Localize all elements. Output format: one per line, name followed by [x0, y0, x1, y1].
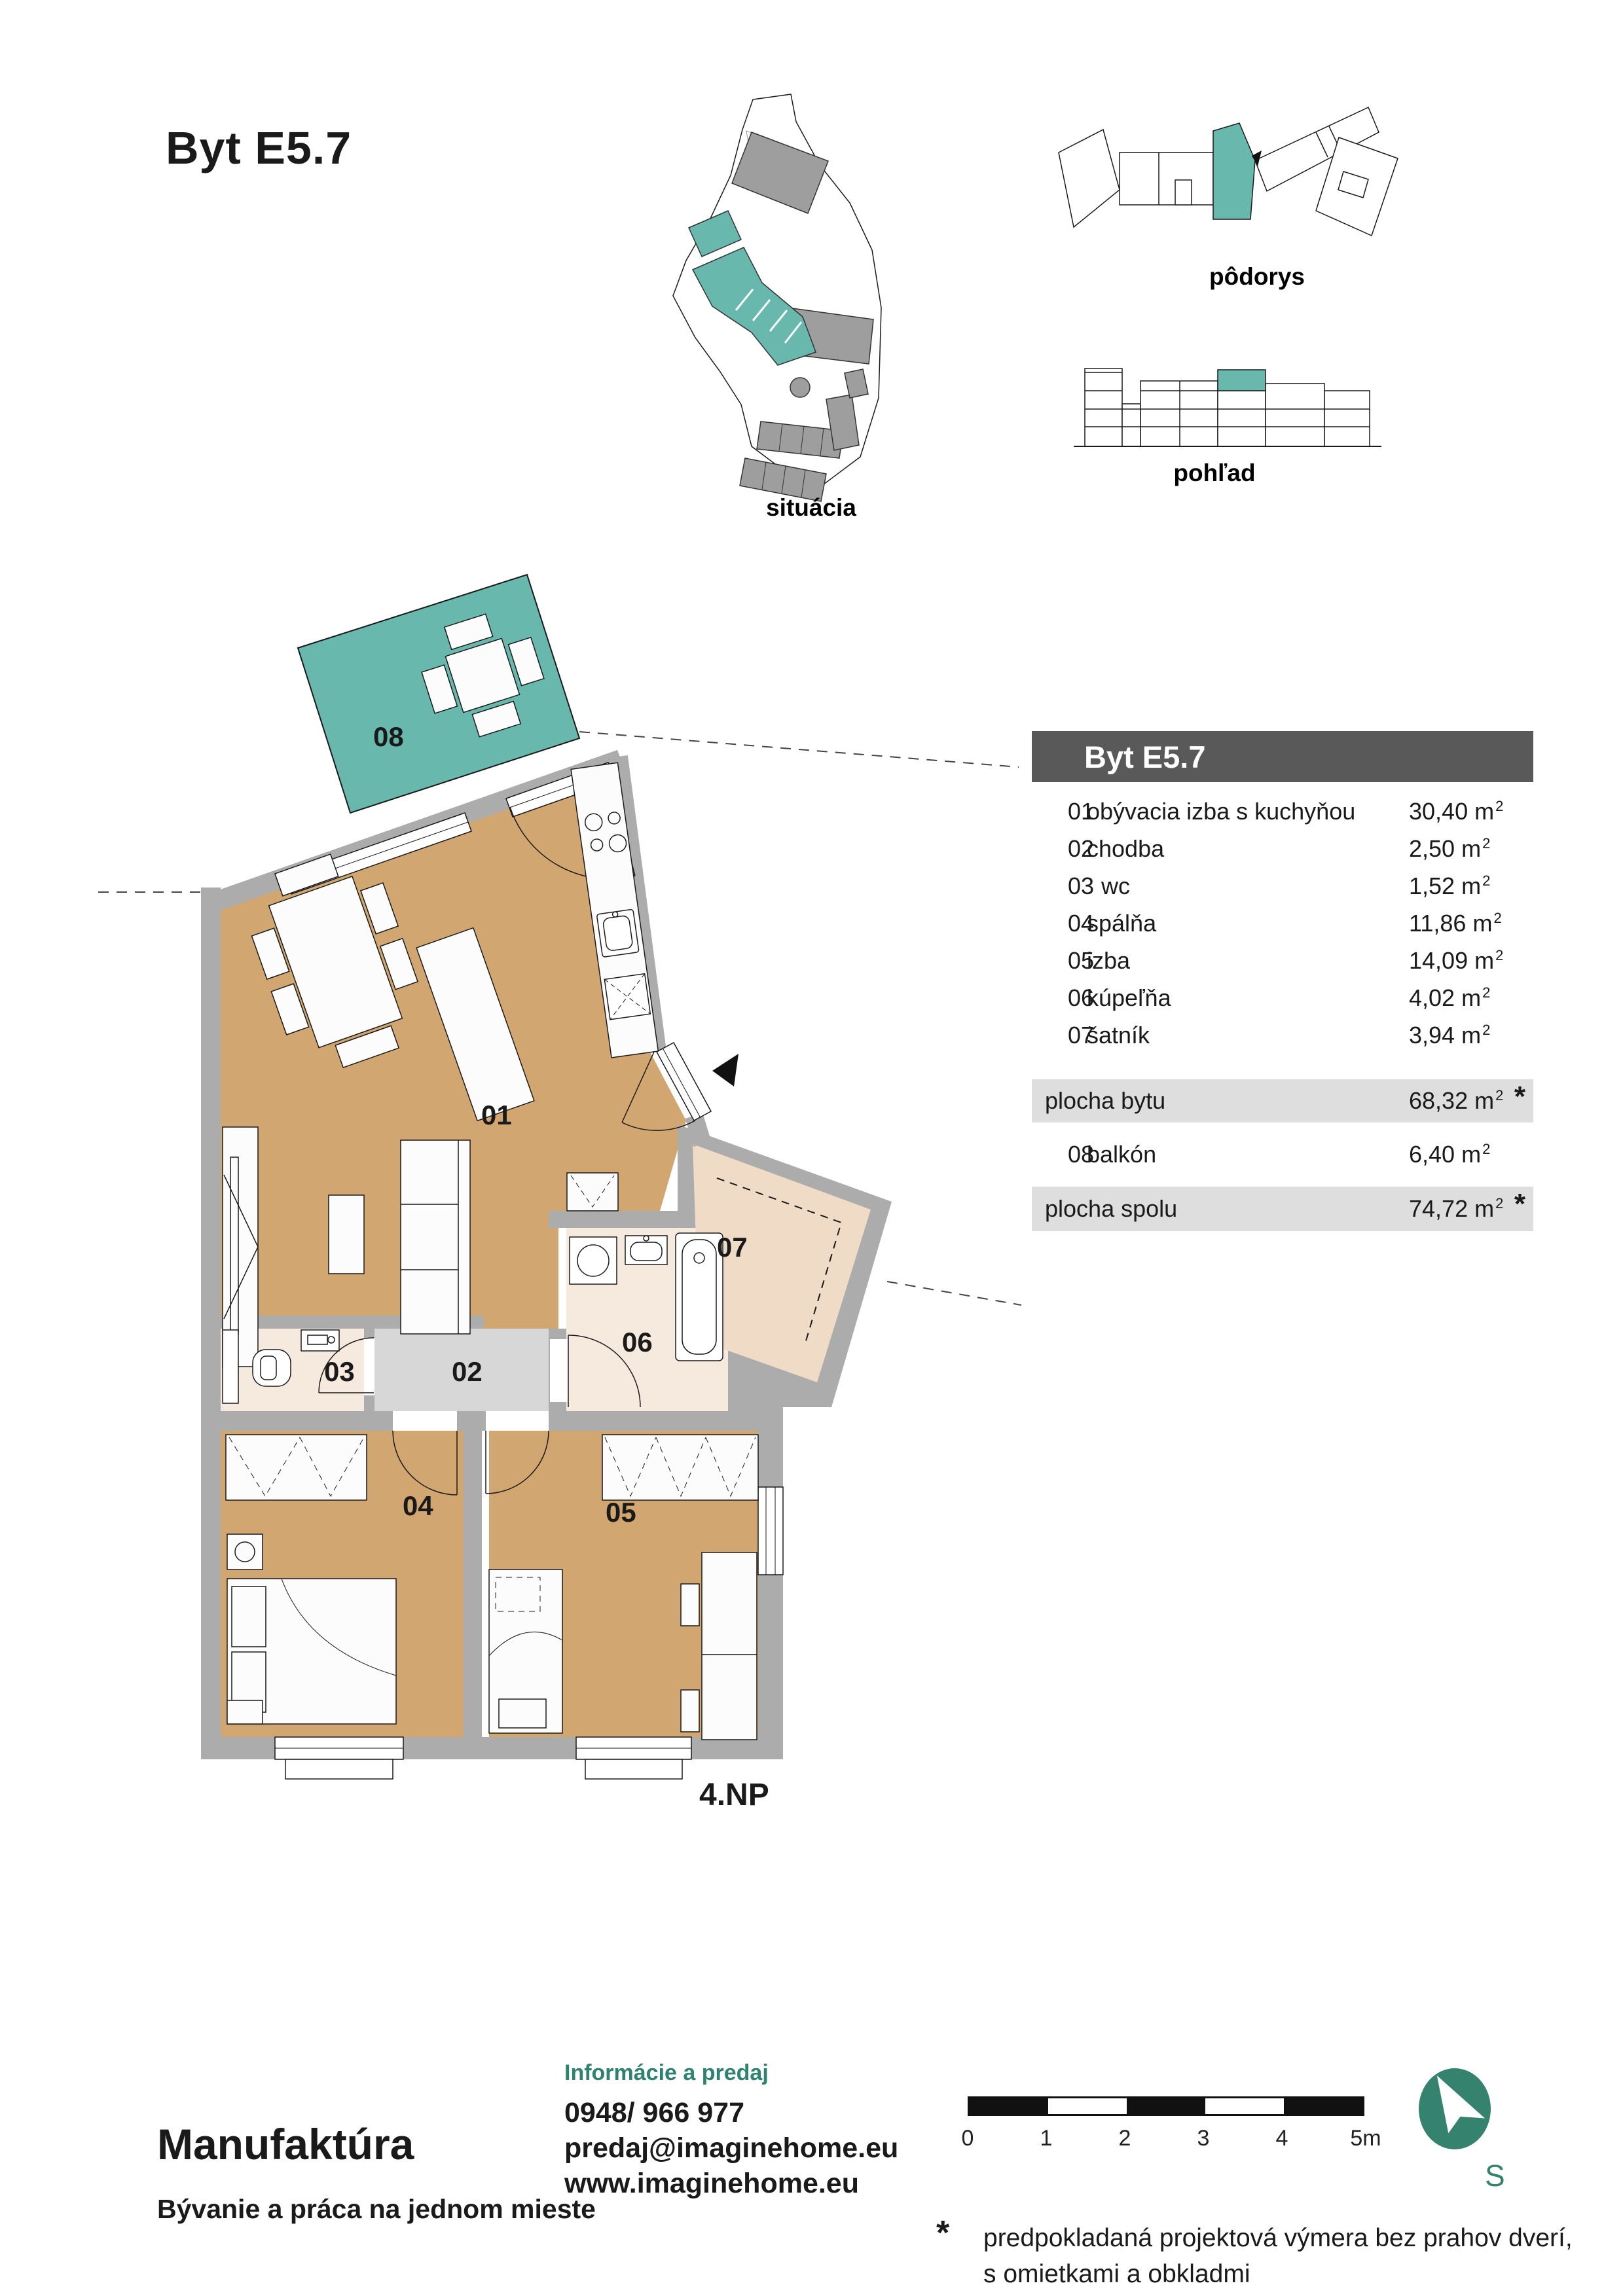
nightstand-icon	[227, 1700, 263, 1724]
wc-sink-icon	[301, 1330, 339, 1351]
brand-logo: Manufaktúra	[157, 2119, 414, 2169]
room-label-07: 07	[717, 1232, 748, 1263]
room-label-06: 06	[622, 1327, 653, 1357]
north-arrow: S	[1408, 2055, 1525, 2199]
contact-heading: Informácie a predaj	[564, 2060, 769, 2086]
north-label: S	[1485, 2159, 1505, 2193]
room-label-04: 04	[403, 1490, 433, 1521]
nightstand-icon	[227, 1534, 263, 1570]
room-label-03: 03	[324, 1356, 355, 1387]
room-label-02: 02	[452, 1356, 483, 1387]
summary-flat-row: plocha bytu 68,32 m2 *	[1032, 1079, 1533, 1122]
contact-email: predaj@imaginehome.eu	[564, 2132, 898, 2164]
balcony	[298, 575, 579, 813]
wardrobe-04	[226, 1435, 367, 1500]
room-label-01: 01	[481, 1100, 512, 1130]
bathtub-icon	[676, 1233, 723, 1361]
scale-bar	[968, 2096, 1364, 2116]
room-label-05: 05	[606, 1497, 636, 1528]
asterisk: *	[1514, 1081, 1525, 1113]
single-bed	[489, 1570, 562, 1733]
contact-phone: 0948/ 966 977	[564, 2097, 744, 2129]
table-row: 07 šatník 3,94 m2	[1032, 1016, 1533, 1054]
table-row-balcony: 08 balkón 6,40 m2	[1032, 1132, 1533, 1177]
scale-bar-labels: 0 1 2 3 4 5m	[968, 2126, 1387, 2152]
table-row: 06 kúpeľňa 4,02 m2	[1032, 979, 1533, 1016]
kitchen-sink-icon	[596, 909, 639, 957]
sofa	[401, 1140, 470, 1334]
table-body: 01 obývacia izba s kuchyňou 30,40 m2 02 …	[1032, 782, 1533, 1054]
table-row: 01 obývacia izba s kuchyňou 30,40 m2	[1032, 793, 1533, 830]
asterisk: *	[1514, 1188, 1525, 1221]
area-table: Byt E5.7 01 obývacia izba s kuchyňou 30,…	[1032, 731, 1533, 1231]
table-row: 05 izba 14,09 m2	[1032, 942, 1533, 979]
wardrobe-05	[602, 1435, 758, 1500]
entrance-arrow-icon	[712, 1054, 739, 1086]
floor-level-label: 4.NP	[699, 1778, 769, 1812]
bath-sink-icon	[625, 1236, 667, 1265]
contact-website: www.imaginehome.eu	[564, 2168, 859, 2200]
summary-total-row: plocha spolu 74,72 m2 *	[1032, 1187, 1533, 1231]
toilet-icon	[253, 1350, 291, 1386]
table-row: 02 chodba 2,50 m2	[1032, 830, 1533, 867]
table-row: 04 spálňa 11,86 m2	[1032, 905, 1533, 942]
kitchen-appliance-icon	[604, 974, 650, 1020]
floor-plan-sheet: Byt E5.7 situácia	[0, 0, 1623, 2296]
washer-icon	[570, 1237, 617, 1284]
footnote-mark: *	[936, 2214, 949, 2253]
table-header: Byt E5.7	[1032, 731, 1533, 782]
room-label-08: 08	[373, 721, 404, 752]
footnote: predpokladaná projektová výmera bez prah…	[983, 2220, 1573, 2292]
living-closet-niche	[567, 1173, 618, 1211]
coffee-table	[329, 1195, 364, 1274]
brand-tagline: Bývanie a práca na jednom mieste	[157, 2194, 596, 2225]
table-row: 03 wc 1,52 m2	[1032, 867, 1533, 905]
